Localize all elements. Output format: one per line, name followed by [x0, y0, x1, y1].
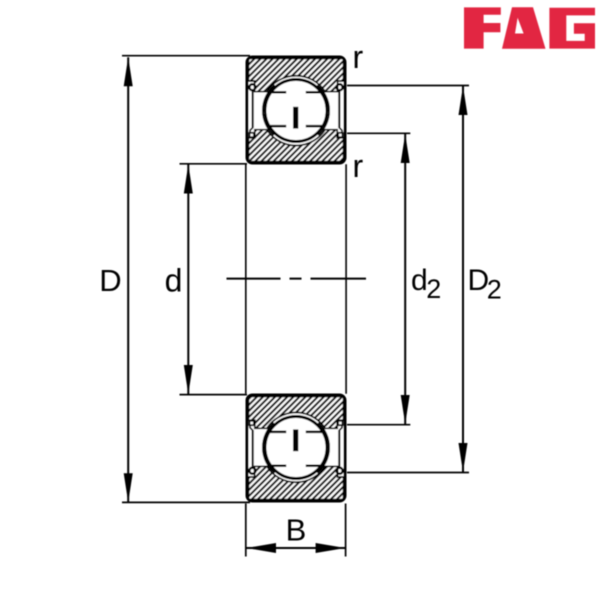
- svg-text:2: 2: [487, 274, 502, 304]
- svg-text:d: d: [165, 263, 183, 299]
- svg-text:r: r: [353, 148, 364, 184]
- svg-text:D: D: [99, 263, 121, 298]
- svg-text:r: r: [353, 39, 364, 75]
- svg-text:2: 2: [426, 274, 441, 304]
- svg-text:B: B: [286, 513, 307, 548]
- svg-text:d: d: [411, 264, 428, 297]
